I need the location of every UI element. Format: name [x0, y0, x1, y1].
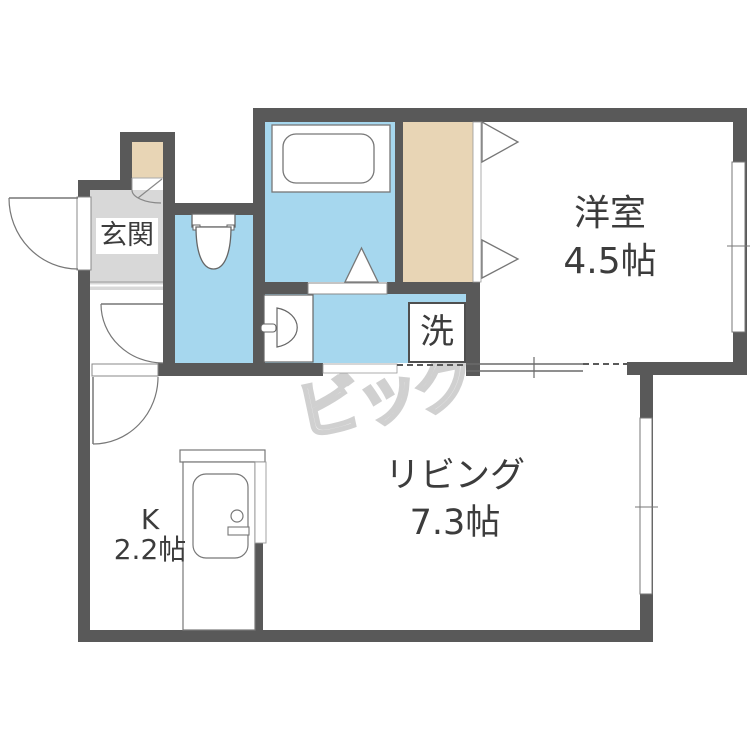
- living-room-name: リビング: [345, 453, 565, 500]
- kitchen-name: K: [90, 505, 210, 535]
- wall-right-western: [733, 108, 747, 375]
- shoe-closet-floor: [132, 142, 163, 178]
- hall-kitchen-door: [92, 364, 158, 444]
- genkan-label: 玄関: [96, 218, 158, 254]
- kitchen-size: 2.2帖: [90, 535, 210, 565]
- wall-bath-bottom-left: [265, 282, 308, 294]
- laundry-box: 洗: [408, 302, 466, 363]
- sliding-door: [466, 357, 627, 378]
- wall-bath-closet: [395, 122, 403, 283]
- living-room-label: リビング 7.3帖: [345, 453, 565, 547]
- living-room-size: 7.3帖: [345, 500, 565, 547]
- western-room-label: 洋室 4.5帖: [500, 190, 720, 286]
- wall-washroom-right: [466, 294, 480, 376]
- bathroom-floor: [265, 122, 395, 282]
- wall-toilet-top: [163, 203, 263, 215]
- wall-shoe-closet-top: [120, 132, 175, 142]
- closet-floor: [403, 122, 473, 282]
- wall-bottom: [78, 630, 653, 642]
- kitchen-label: K 2.2帖: [90, 505, 210, 565]
- wall-left: [78, 270, 90, 642]
- western-room-size: 4.5帖: [500, 238, 720, 286]
- wall-kitchen-stub: [250, 543, 263, 630]
- wall-bath-left: [253, 122, 265, 365]
- wall-left-above-door: [78, 190, 90, 198]
- wall-genkan-top: [78, 180, 132, 190]
- wall-bath-bottom-right: [387, 282, 480, 294]
- floorplan: ビッグ: [0, 0, 750, 750]
- wall-mid-band: [158, 363, 323, 376]
- wall-top: [253, 108, 747, 122]
- entry-door: [9, 197, 91, 270]
- toilet-floor: [175, 215, 253, 363]
- wall-living-right: [640, 362, 653, 642]
- hall-door: [101, 304, 163, 363]
- wall-genkan-right: [163, 132, 175, 363]
- western-room-name: 洋室: [500, 190, 720, 238]
